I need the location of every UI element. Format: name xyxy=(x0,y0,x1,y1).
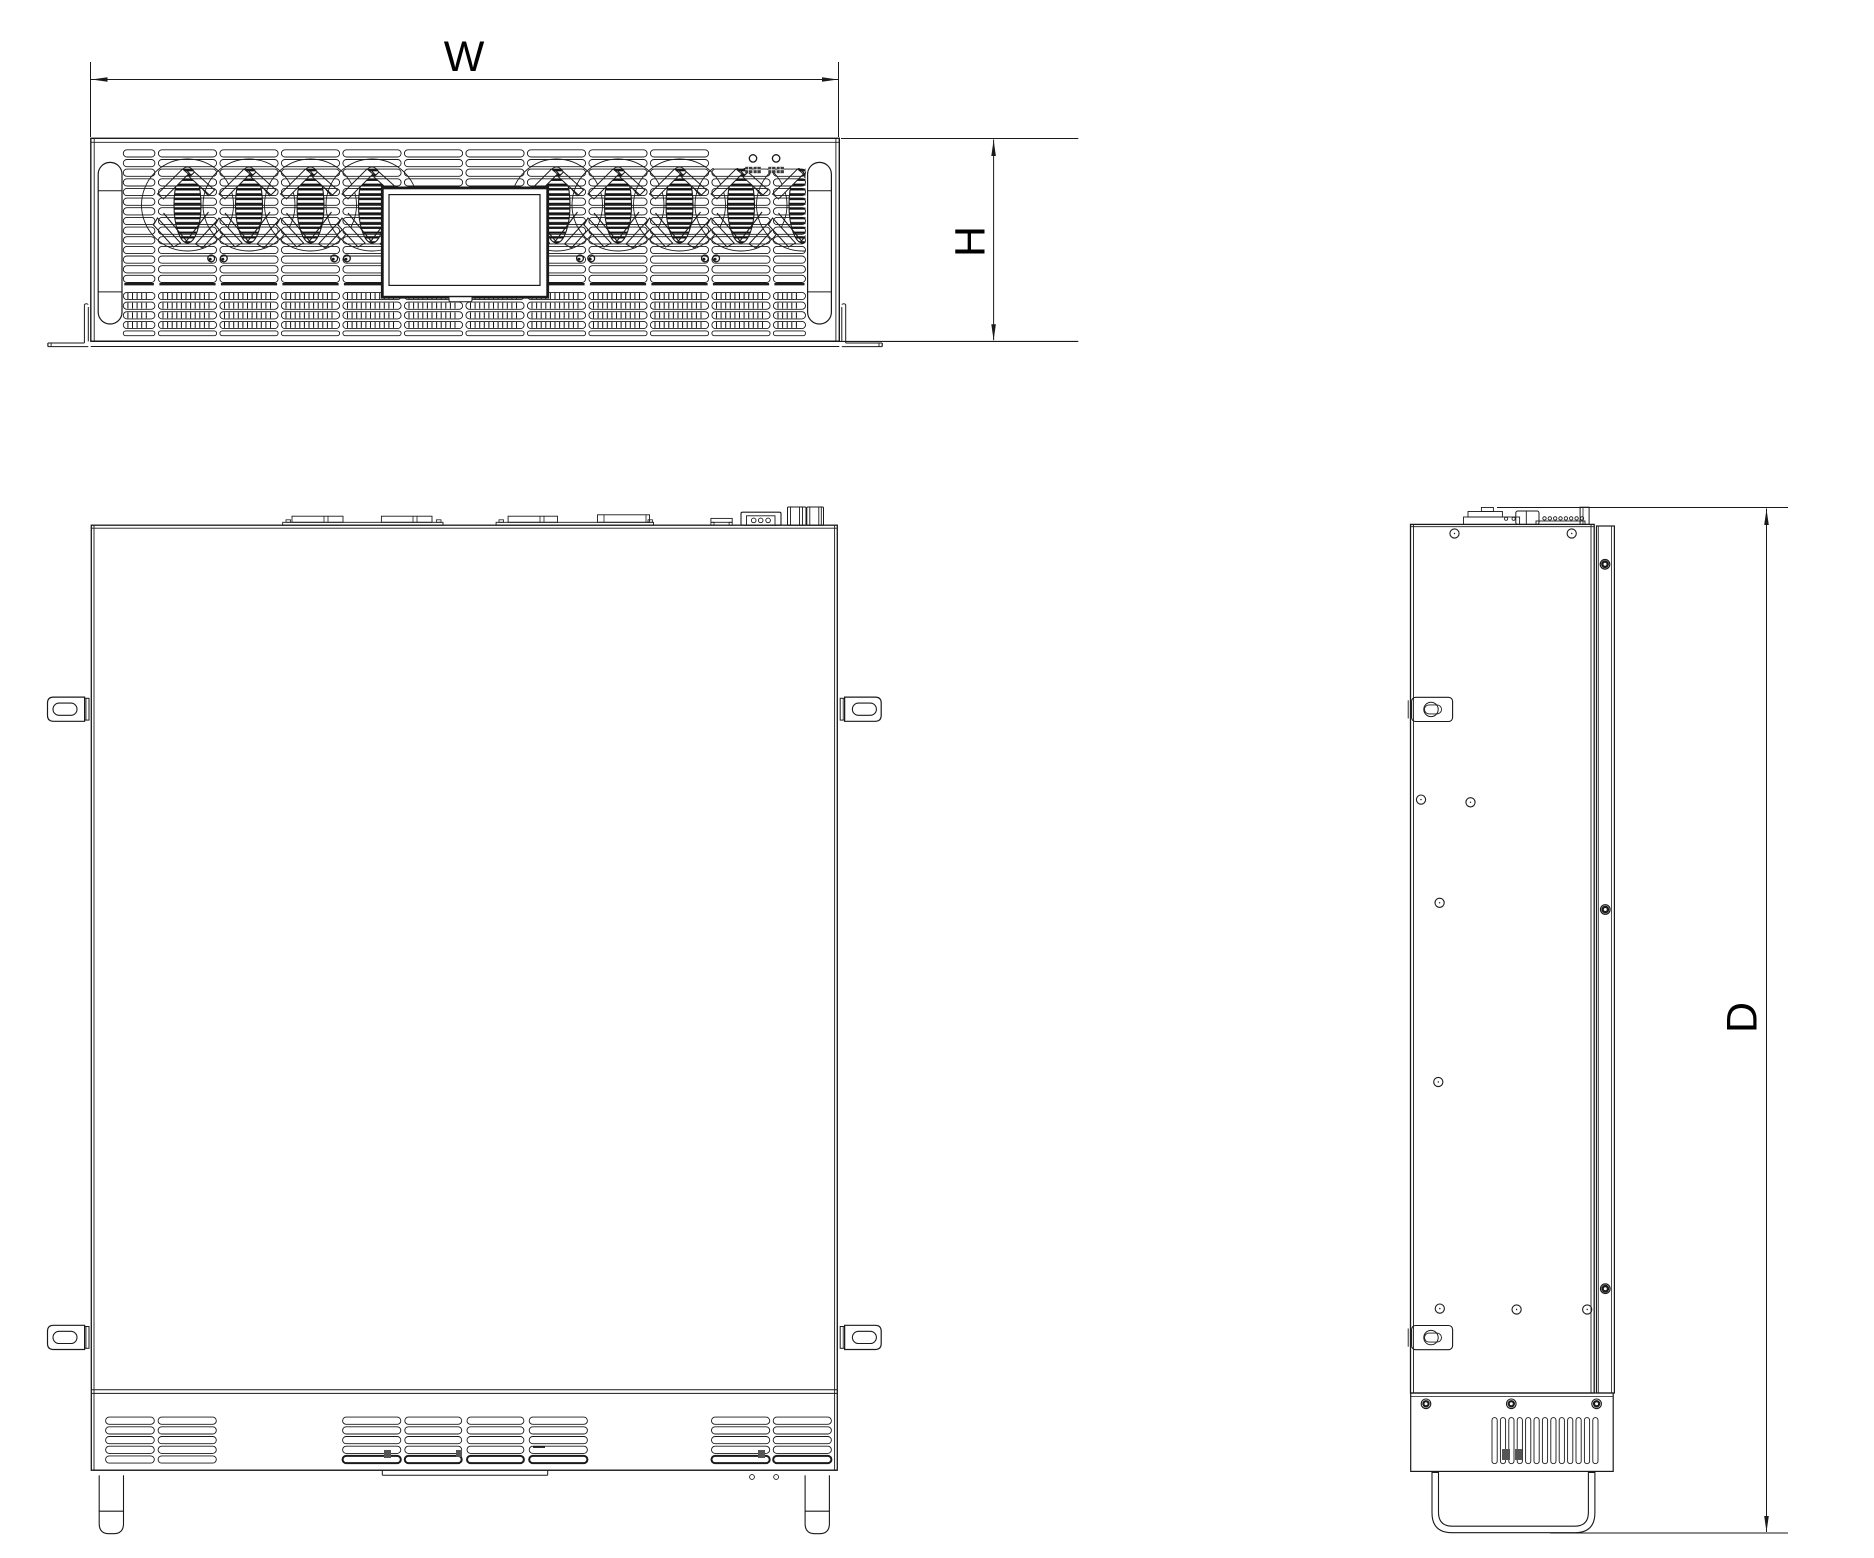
svg-text:W: W xyxy=(444,33,485,81)
svg-text:D: D xyxy=(1718,1002,1766,1033)
svg-text:H: H xyxy=(946,226,994,257)
